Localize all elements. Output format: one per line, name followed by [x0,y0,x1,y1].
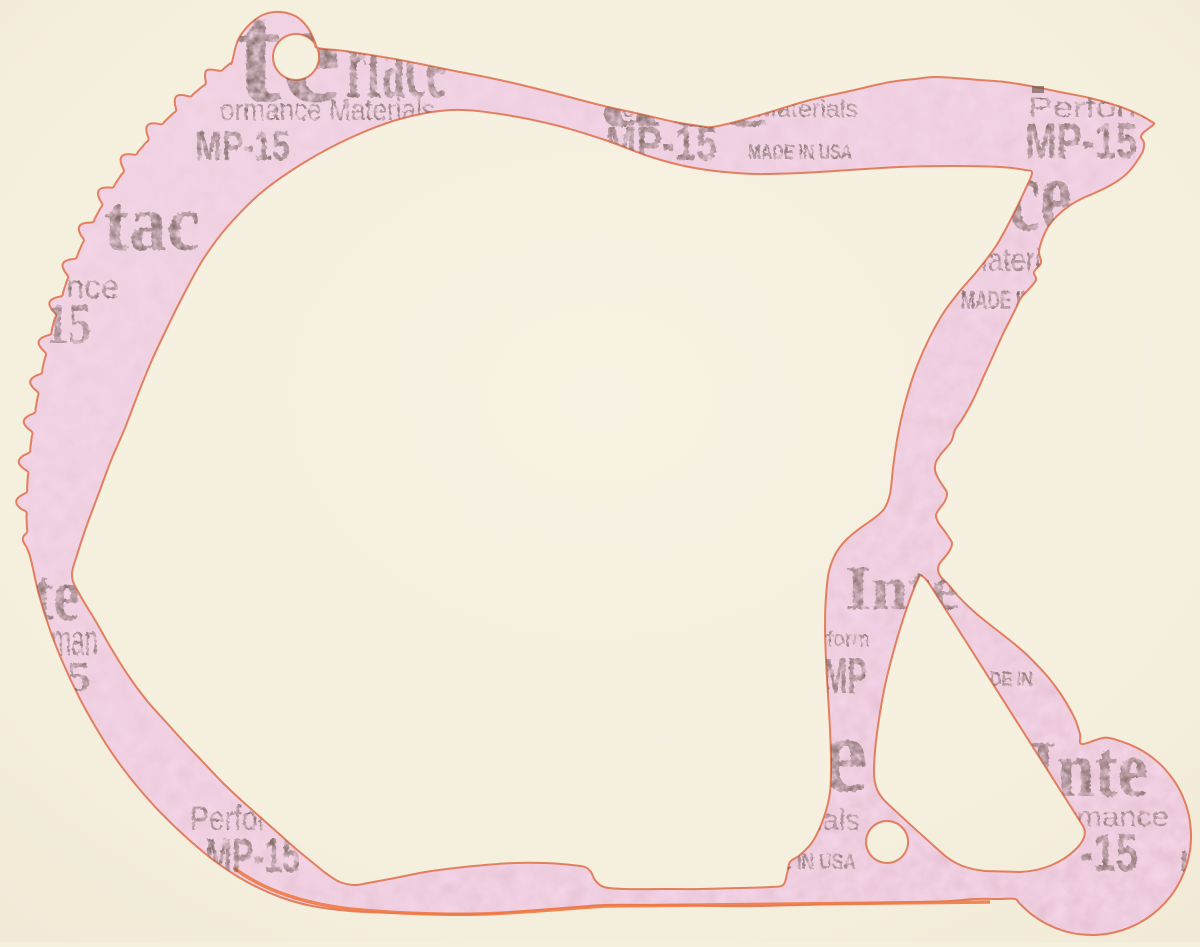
svg-text:MADE IN USA: MADE IN USA [748,141,852,164]
svg-text:MP-15: MP-15 [195,122,290,169]
svg-text:tac: tac [104,180,200,268]
svg-text:-15: -15 [1080,823,1138,883]
